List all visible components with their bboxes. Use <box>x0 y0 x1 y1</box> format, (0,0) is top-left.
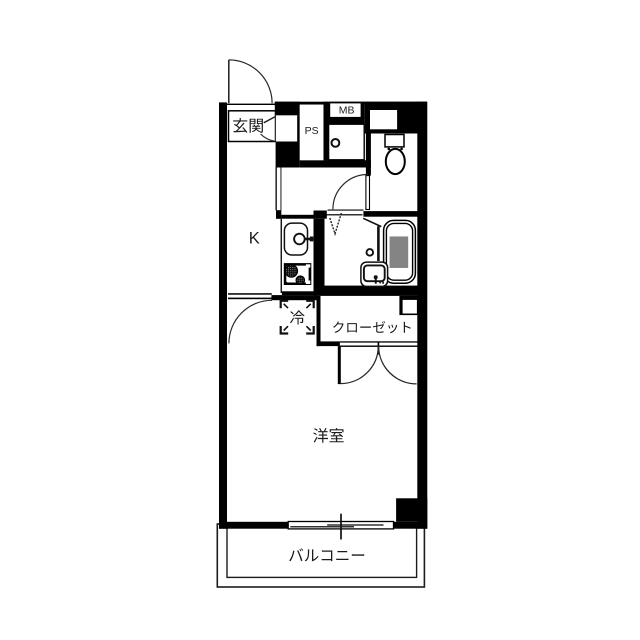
svg-text:K: K <box>249 230 260 248</box>
svg-text:PS: PS <box>305 125 319 137</box>
svg-text:MB: MB <box>339 105 355 117</box>
